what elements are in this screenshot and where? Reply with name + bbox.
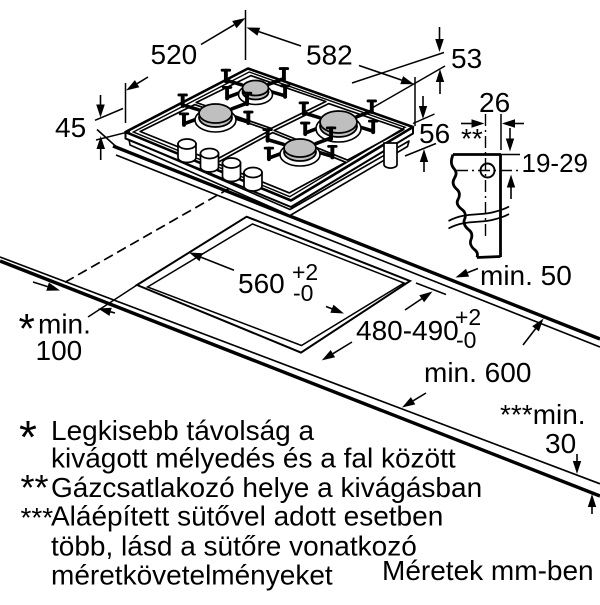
svg-text:kivágott mélyedés és a fal köz: kivágott mélyedés és a fal között bbox=[51, 443, 456, 474]
svg-text:***min.: ***min. bbox=[500, 399, 586, 430]
svg-text:520: 520 bbox=[151, 39, 198, 70]
svg-text:26: 26 bbox=[479, 87, 510, 118]
svg-text:100: 100 bbox=[36, 335, 83, 366]
svg-text:560: 560 bbox=[238, 268, 285, 299]
svg-text:*: * bbox=[19, 411, 37, 463]
svg-text:min. 600: min. 600 bbox=[424, 357, 531, 388]
svg-text:méretkövetelményeket: méretkövetelményeket bbox=[51, 560, 333, 591]
svg-text:45: 45 bbox=[55, 112, 86, 143]
svg-text:min. 50: min. 50 bbox=[480, 260, 572, 291]
svg-text:**: ** bbox=[461, 123, 483, 154]
svg-text:30: 30 bbox=[545, 428, 576, 459]
svg-text:Gázcsatlakozó helye a kivágásb: Gázcsatlakozó helye a kivágásban bbox=[51, 472, 482, 503]
svg-text:több, lásd a sütőre vonatkozó: több, lásd a sütőre vonatkozó bbox=[51, 531, 417, 562]
svg-text:-0: -0 bbox=[293, 280, 313, 306]
svg-text:53: 53 bbox=[451, 43, 482, 74]
svg-text:***: *** bbox=[21, 502, 54, 533]
svg-text:480-490: 480-490 bbox=[356, 315, 459, 346]
svg-text:582: 582 bbox=[306, 40, 353, 71]
svg-text:56: 56 bbox=[419, 118, 450, 149]
svg-text:19-29: 19-29 bbox=[522, 148, 589, 178]
svg-text:Aláépített sütővel adott esetb: Aláépített sütővel adott esetben bbox=[51, 501, 443, 532]
svg-text:*: * bbox=[19, 305, 35, 352]
svg-text:Méretek mm-ben: Méretek mm-ben bbox=[382, 555, 594, 586]
svg-text:-0: -0 bbox=[456, 327, 476, 353]
svg-text:Legkisebb távolság a: Legkisebb távolság a bbox=[51, 415, 315, 446]
